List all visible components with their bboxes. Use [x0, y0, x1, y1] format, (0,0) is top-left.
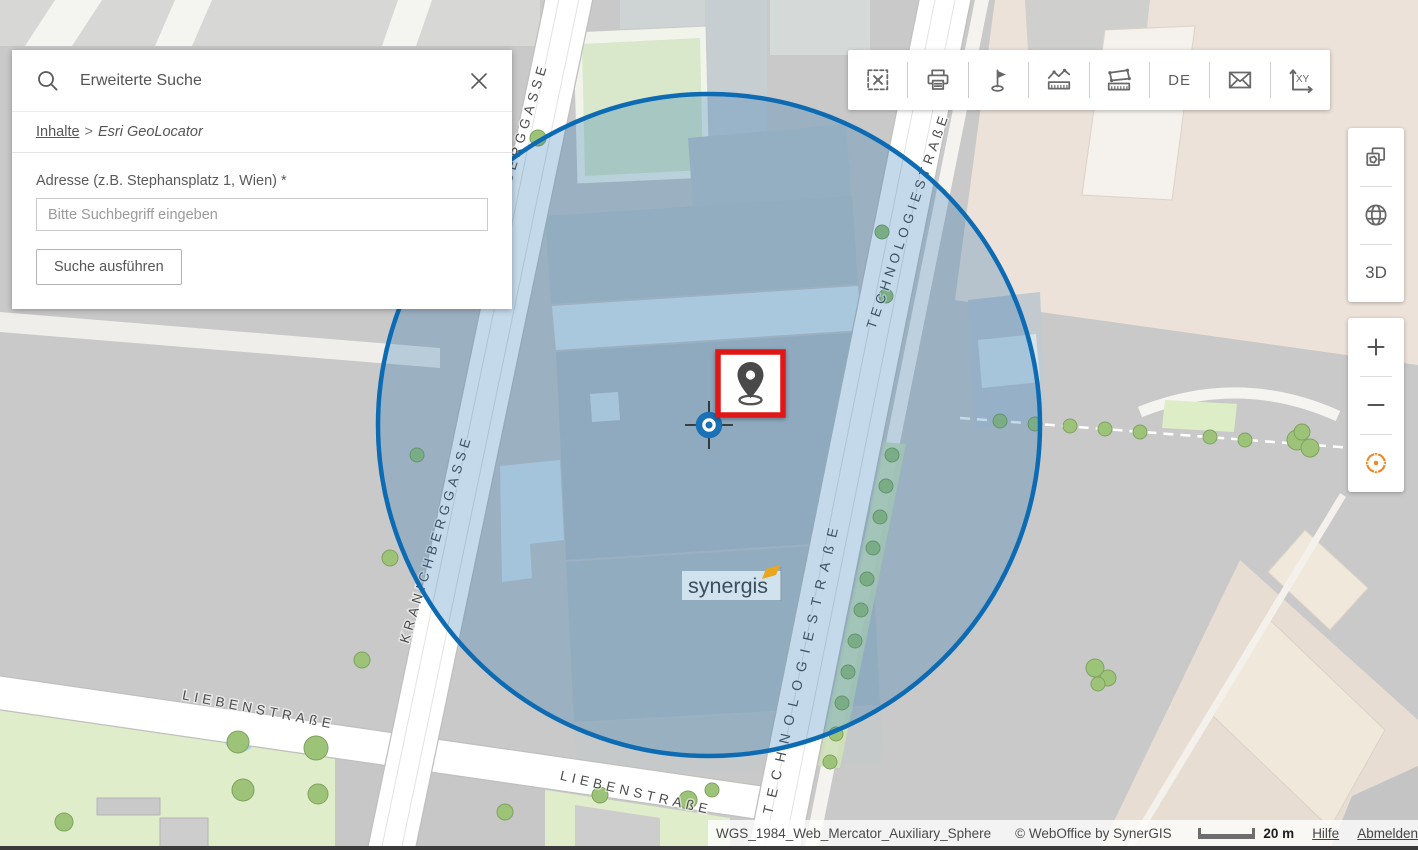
redlining-flag-button[interactable] — [969, 50, 1028, 110]
select-box-icon — [864, 66, 892, 94]
breadcrumb: Inhalte>Esri GeoLocator — [12, 112, 512, 153]
xy-coordinates-icon: XY — [1285, 65, 1315, 95]
close-button[interactable] — [466, 68, 492, 94]
help-link[interactable]: Hilfe — [1312, 826, 1339, 841]
plus-icon — [1362, 333, 1390, 361]
overview-map-icon — [1362, 143, 1390, 171]
coordinates-button[interactable]: XY — [1271, 50, 1330, 110]
address-input[interactable] — [36, 198, 488, 231]
measure-distance-button[interactable] — [1029, 50, 1088, 110]
scale-bar — [1198, 828, 1256, 839]
globe-button[interactable] — [1348, 186, 1404, 244]
select-tool-button[interactable] — [848, 50, 907, 110]
geolocate-button[interactable] — [1348, 434, 1404, 492]
breadcrumb-root-link[interactable]: Inhalte — [36, 124, 80, 140]
language-button[interactable]: DE — [1150, 50, 1209, 110]
3d-view-button[interactable]: 3D — [1348, 244, 1404, 302]
measure-area-icon — [1105, 66, 1133, 94]
status-bar: WGS_1984_Web_Mercator_Auxiliary_Sphere ©… — [708, 820, 1418, 846]
flag-pin-icon — [984, 66, 1012, 94]
advanced-search-panel: Erweiterte Suche Inhalte>Esri GeoLocator… — [12, 50, 512, 309]
minus-icon — [1362, 391, 1390, 419]
map-block-topleft — [0, 0, 540, 46]
language-label: DE — [1168, 72, 1191, 89]
3d-label: 3D — [1365, 263, 1387, 283]
map-tools-card: 3D — [1348, 128, 1404, 302]
measure-area-button[interactable] — [1090, 50, 1149, 110]
location-pin-icon — [738, 362, 764, 404]
address-field-label: Adresse (z.B. Stephansplatz 1, Wien) * — [36, 173, 488, 189]
panel-header: Erweiterte Suche — [12, 50, 512, 112]
close-icon — [468, 70, 490, 92]
synergis-logo-text: synergis — [688, 574, 768, 598]
execute-search-button[interactable]: Suche ausführen — [36, 249, 182, 285]
geolocate-icon — [1362, 449, 1390, 477]
zoom-in-button[interactable] — [1348, 318, 1404, 376]
zoom-out-button[interactable] — [1348, 376, 1404, 434]
printer-icon — [924, 66, 952, 94]
copyright-label: © WebOffice by SynerGIS — [1015, 826, 1172, 841]
breadcrumb-current: Esri GeoLocator — [98, 124, 203, 140]
overview-map-button[interactable] — [1348, 128, 1404, 186]
xy-label: XY — [1296, 74, 1310, 85]
projection-label: WGS_1984_Web_Mercator_Auxiliary_Sphere — [716, 826, 991, 841]
envelope-icon — [1226, 66, 1254, 94]
search-icon — [36, 69, 60, 93]
breadcrumb-separator: > — [85, 124, 93, 140]
search-form: Adresse (z.B. Stephansplatz 1, Wien) * S… — [12, 153, 512, 309]
print-button[interactable] — [908, 50, 967, 110]
logout-link[interactable]: Abmelden — [1357, 826, 1418, 841]
scale-text: 20 m — [1263, 826, 1294, 841]
panel-title: Erweiterte Suche — [80, 72, 466, 90]
zoom-tools-card — [1348, 318, 1404, 492]
result-marker[interactable] — [718, 352, 783, 415]
globe-icon — [1362, 201, 1390, 229]
measure-distance-icon — [1045, 66, 1073, 94]
bottom-edge-strip — [0, 846, 1418, 850]
mail-button[interactable] — [1210, 50, 1269, 110]
map-toolbar: DE XY — [848, 50, 1330, 110]
